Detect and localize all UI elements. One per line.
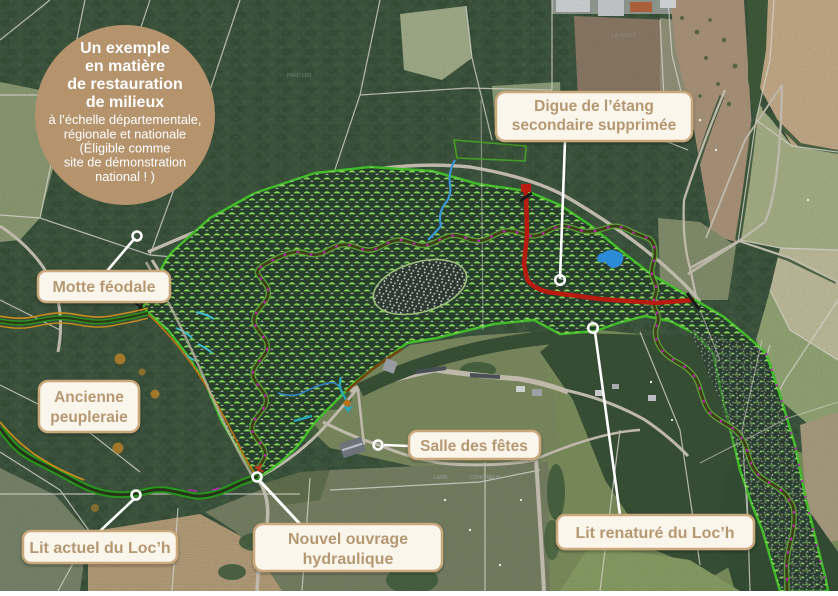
svg-text:LANN: LANN [434, 475, 448, 481]
svg-text:secondaire supprimée: secondaire supprimée [512, 117, 677, 134]
svg-text:Motte féodale: Motte féodale [52, 279, 155, 296]
svg-text:(Éligible comme: (Éligible comme [79, 141, 170, 156]
svg-text:COAT: COAT [755, 124, 769, 130]
svg-text:en matière: en matière [85, 58, 165, 75]
svg-text:à l’échelle départementale,: à l’échelle départementale, [49, 112, 202, 127]
svg-text:PARC LER: PARC LER [287, 73, 312, 79]
svg-text:de milieux: de milieux [86, 94, 164, 111]
svg-text:Digue de l’étang: Digue de l’étang [534, 98, 654, 115]
svg-text:Lit renaturé du Loc’h: Lit renaturé du Loc’h [575, 525, 734, 542]
svg-text:régionale et nationale: régionale et nationale [64, 127, 186, 142]
svg-text:Ancienne: Ancienne [54, 389, 124, 406]
svg-text:Salle des fêtes: Salle des fêtes [420, 438, 528, 455]
svg-text:COHIGNEUX: COHIGNEUX [470, 475, 501, 481]
svg-text:hydraulique: hydraulique [303, 551, 394, 568]
svg-text:Lit actuel du Loc’h: Lit actuel du Loc’h [29, 540, 170, 557]
svg-text:Nouvel ouvrage: Nouvel ouvrage [288, 531, 408, 548]
svg-text:peupleraie: peupleraie [50, 409, 128, 426]
svg-text:site de démonstration: site de démonstration [64, 155, 186, 170]
svg-text:de restauration: de restauration [67, 76, 183, 93]
svg-text:national ! ): national ! ) [95, 169, 155, 184]
svg-text:Un exemple: Un exemple [80, 40, 170, 57]
svg-text:LA FORET: LA FORET [612, 33, 636, 39]
